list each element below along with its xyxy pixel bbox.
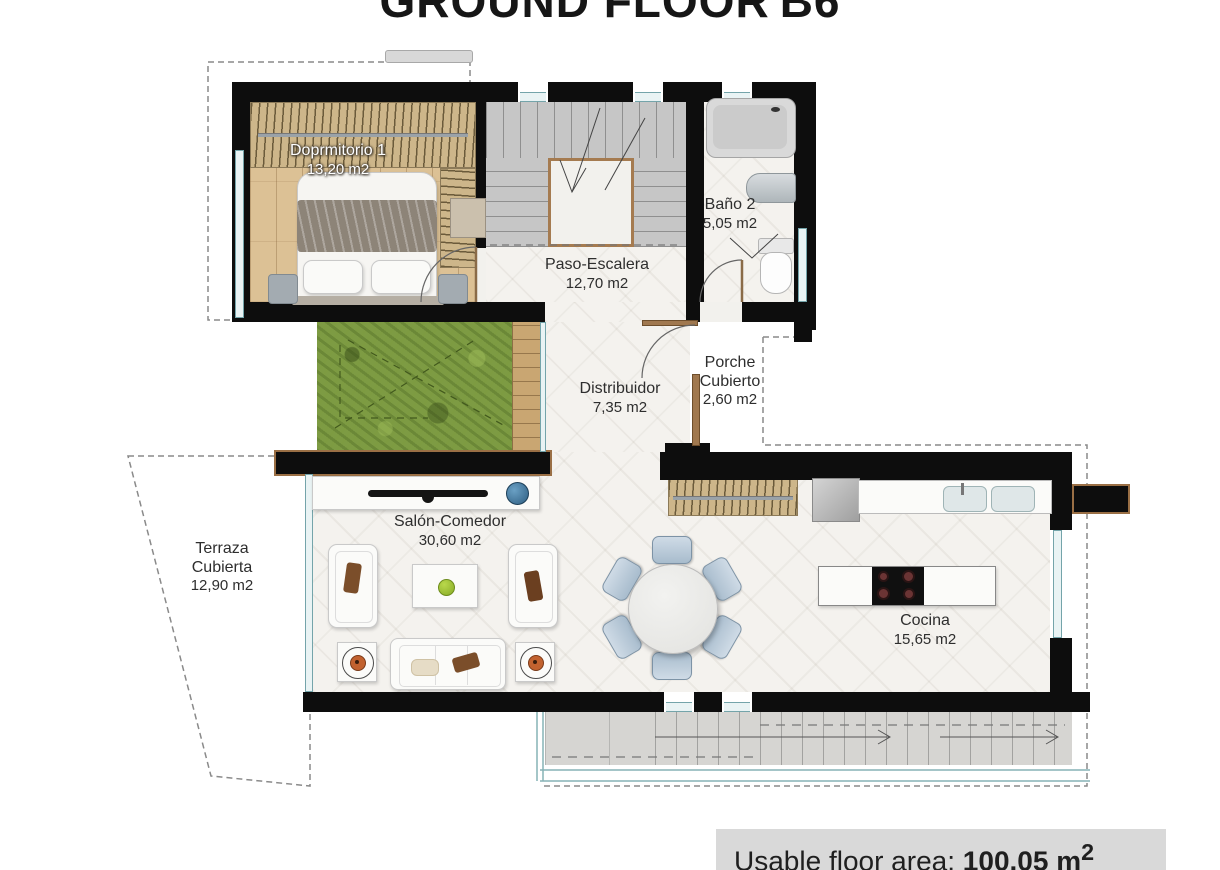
room-area: 15,65 m2 [835,631,1015,648]
wall-porche-right-stub [794,302,812,342]
stair-well-opening [548,158,634,247]
rear-deck-left [545,712,655,765]
burner [877,587,890,600]
room-name: Salón-Comedor [360,513,540,532]
bathroom-door-opening [700,302,742,322]
page-title: GROUND FLOORB6 [0,0,1220,28]
window-opening-5 [722,692,752,712]
bathroom-window [798,228,807,302]
room-name-line1: Terraza [132,540,312,559]
exterior-beam [1072,484,1130,514]
room-area: 5,05 m2 [660,215,800,232]
room-area: 2,60 m2 [670,391,790,408]
room-name-line2: Cubierto [670,373,790,392]
wall-bedroom-bottom [232,302,545,322]
stairs-upper-flight [486,102,686,158]
side-table-center [355,660,359,664]
sofa-cushion-beige [411,659,439,676]
side-table-right [515,642,555,682]
room-label-salon: Salón-Comedor 30,60 m2 [360,513,540,549]
room-label-cocina: Cocina 15,65 m2 [835,612,1015,648]
coffee-table [412,564,478,608]
window-opening-1 [518,82,548,102]
room-area: 30,60 m2 [360,532,540,549]
usable-area-label: Usable floor area: [734,845,963,870]
cooktop [872,567,924,605]
wall-kitchen-top [660,452,1072,480]
fridge [812,478,860,522]
wall-bedroom-top [232,82,482,102]
door-head-frame [642,320,698,326]
stairs-left-flight [486,158,548,247]
bed-pillow-left [303,260,363,294]
side-table-center [533,660,537,664]
room-name: Doprmitorio 1 [248,142,428,161]
usable-area-box: Usable floor area: 100.05 m2 [716,829,1166,870]
usable-area-sup: 2 [1081,839,1094,865]
side-table-left [337,642,377,682]
room-area: 13,20 m2 [248,161,428,178]
window-icon [520,92,546,102]
wardrobe-rail [258,133,469,137]
bed-pillow-right [371,260,431,294]
kitchen-counter [858,480,1052,514]
grass-patio [317,322,512,452]
room-label-dormitorio: Doprmitorio 1 13,20 m2 [248,142,428,178]
window-icon [724,702,750,712]
armchair-left [328,544,378,628]
title-unit: B6 [780,0,841,27]
faucet-icon [961,483,964,495]
window-icon [635,92,661,102]
bathtub-drain [771,107,780,112]
room-name-line2: Cubierta [132,559,312,578]
speaker [506,482,529,505]
wall-salon-kitchen-bottom [303,692,1090,712]
nightstand-left [268,274,298,304]
room-name-line1: Porche [670,354,790,373]
room-name: Paso-Escalera [507,256,687,275]
usable-area-value: 100.05 m [963,845,1081,870]
sofa [390,638,506,690]
dining-chair [652,536,692,564]
bed-blanket [297,200,437,252]
wardrobe-rail [673,496,793,500]
wall-niche [450,198,486,238]
window-icon [666,702,692,712]
room-label-paso: Paso-Escalera 12,70 m2 [507,256,687,292]
window-opening-4 [664,692,694,712]
bedroom-window [235,150,244,318]
wall-kitchen-right-upper [1050,480,1072,530]
kitchen-window [1053,530,1062,638]
wall-bedroom-right-mid [476,238,486,248]
burner [903,588,915,600]
window-opening-2 [633,82,663,102]
floor-plan-canvas: GROUND FLOORB6 [0,0,1220,870]
kitchen-sink-right [991,486,1035,512]
roof-vent [385,50,473,63]
toilet-bowl [760,252,792,294]
rear-deck [655,712,1072,765]
nightstand-right [438,274,468,304]
wall-bedroom-right-upper [476,102,486,198]
room-name: Baño 2 [660,196,800,215]
room-name: Cocina [835,612,1015,631]
bathtub [706,98,796,158]
hall-connector-floor [545,302,686,322]
title-text: GROUND FLOOR [379,0,769,27]
room-label-porche: Porche Cubierto 2,60 m2 [670,354,790,408]
kitchen-wardrobe [668,478,798,516]
burner [902,570,915,583]
terraza-outline [128,456,310,786]
room-label-bano: Baño 2 5,05 m2 [660,196,800,232]
apple-decor [438,579,455,596]
tv [368,490,488,497]
room-area: 12,70 m2 [507,275,687,292]
bedroom-door-opening [476,248,486,302]
dining-chair [652,652,692,680]
armchair-right [508,544,558,628]
dining-table [628,564,718,654]
burner [878,571,889,582]
room-label-terraza: Terraza Cubierta 12,90 m2 [132,540,312,594]
wall-tv [274,450,552,476]
room-area: 12,90 m2 [132,577,312,594]
kitchen-sink-left [943,486,987,512]
bed-headboard [292,296,444,305]
